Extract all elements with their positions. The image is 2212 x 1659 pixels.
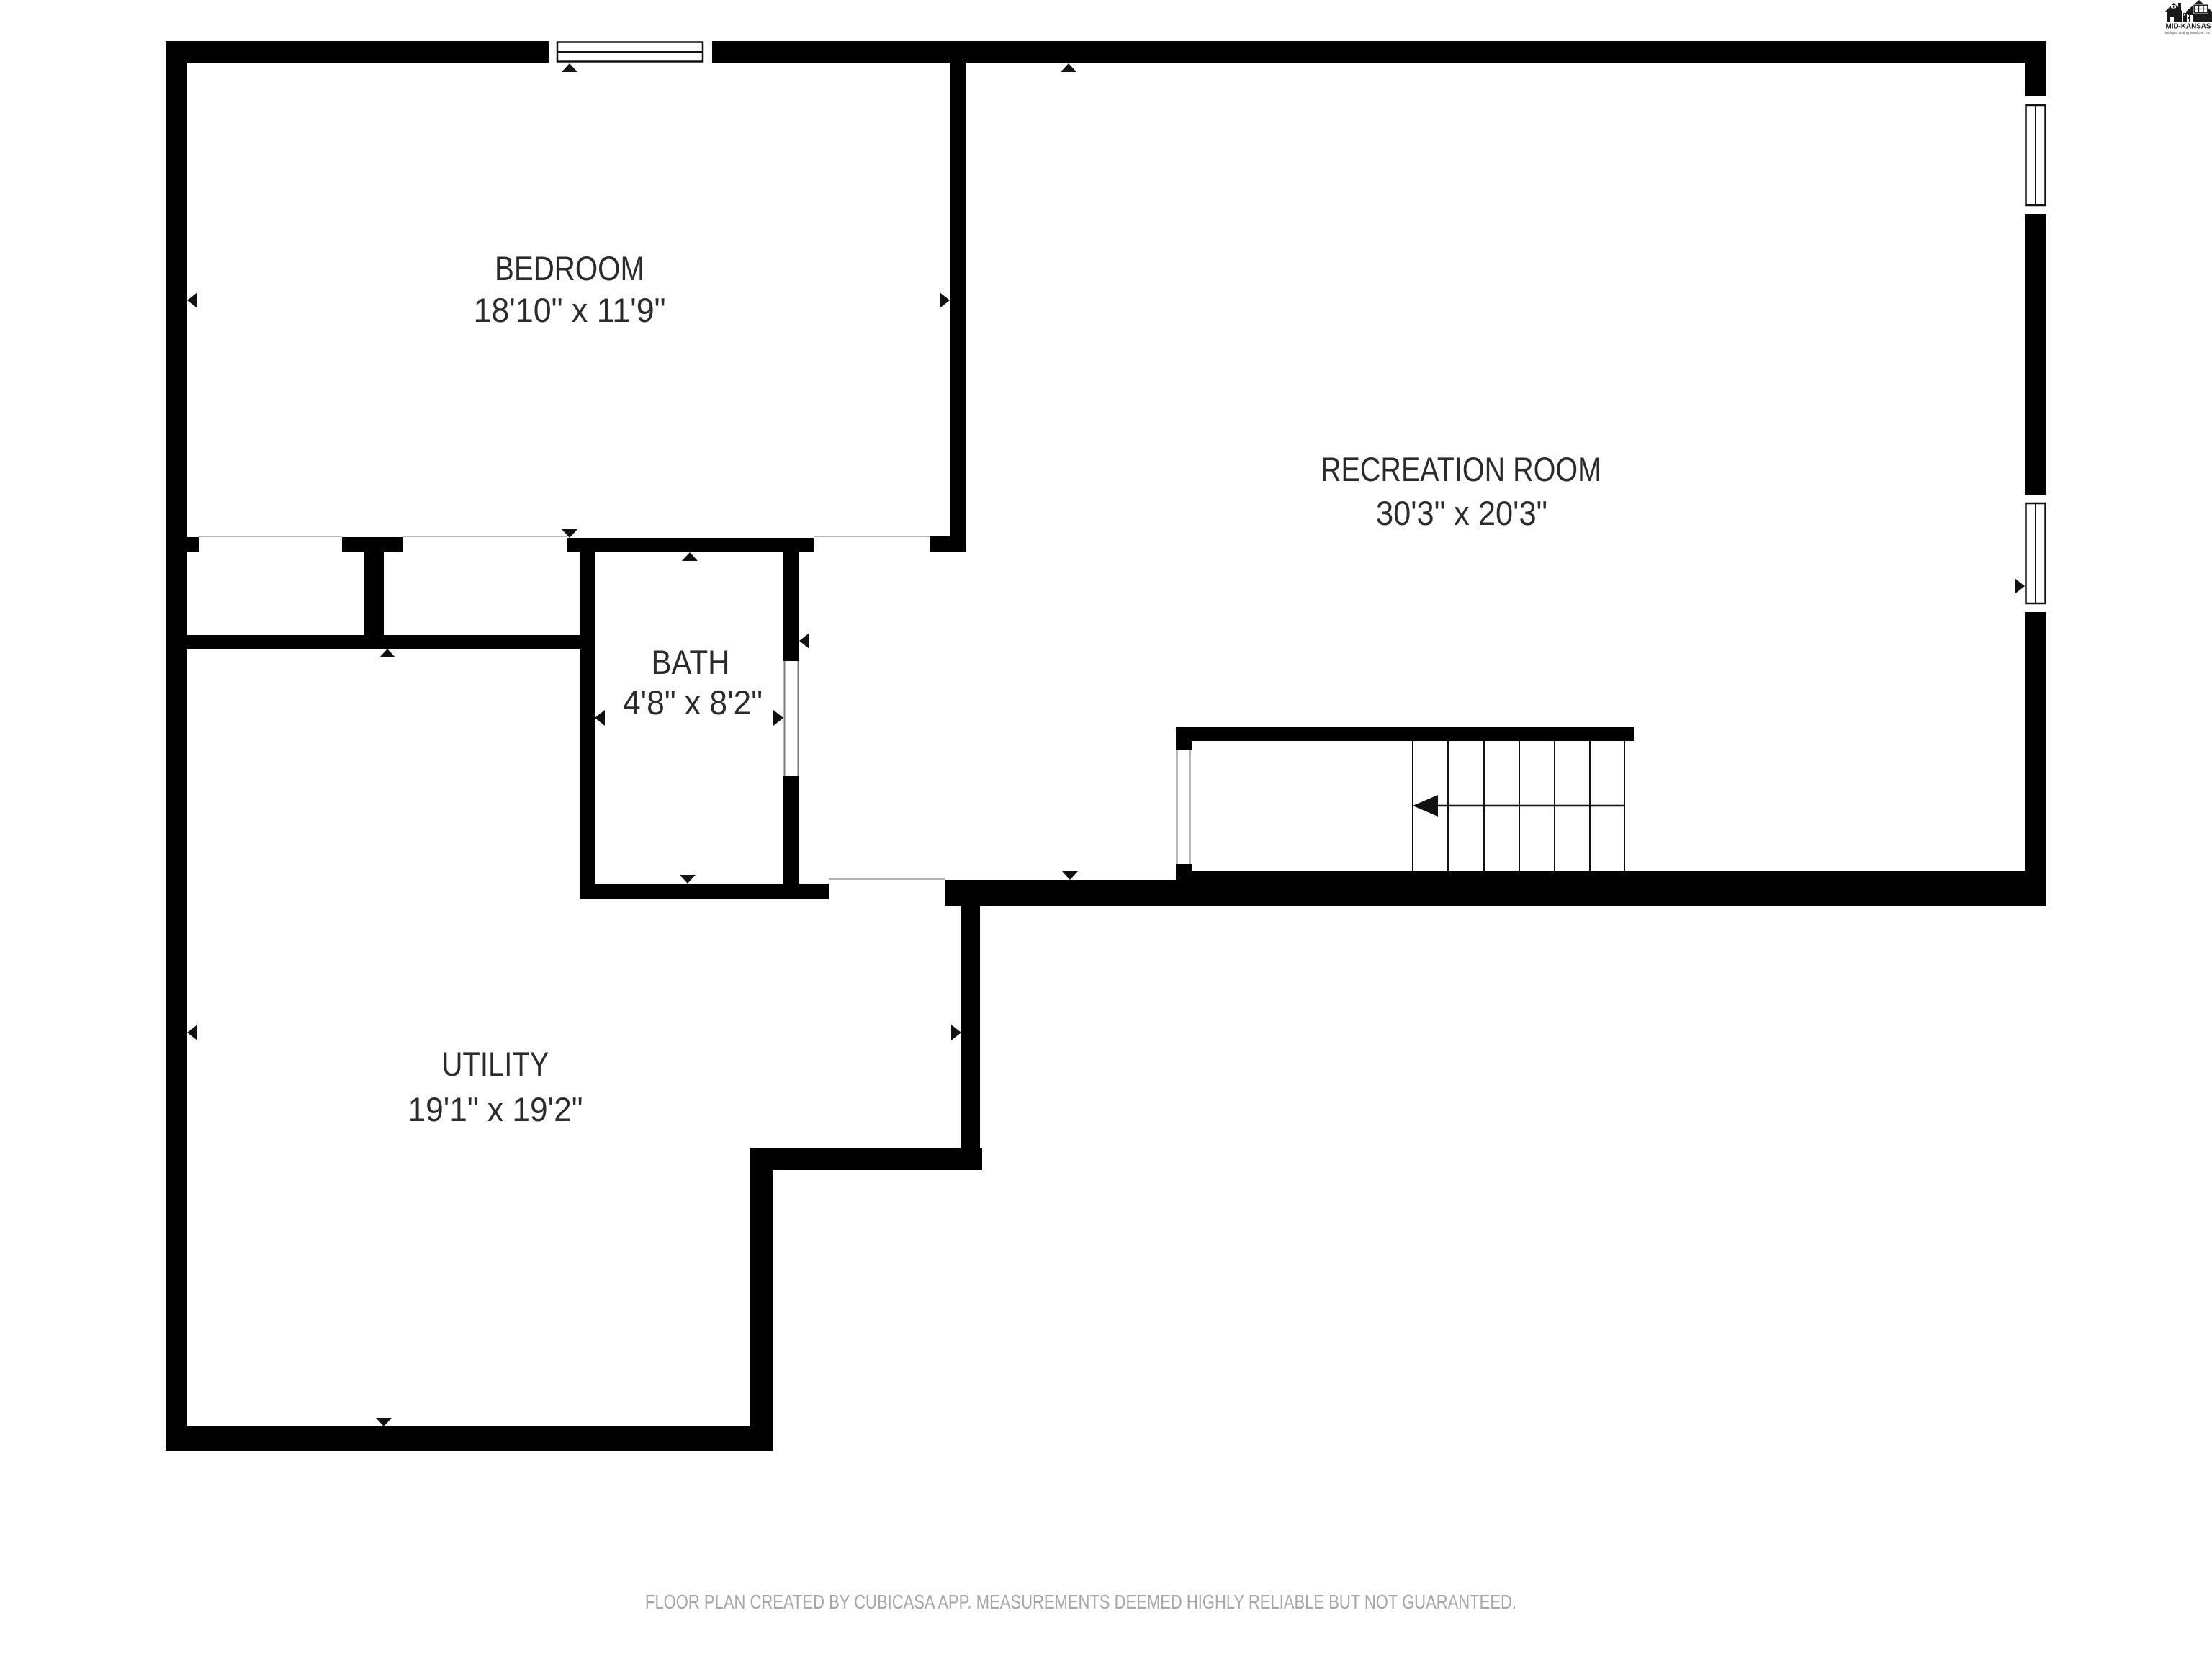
svg-text:30'3" x 20'3": 30'3" x 20'3" [1376, 494, 1547, 532]
svg-text:4'8" x 8'2": 4'8" x 8'2" [623, 683, 763, 721]
svg-text:UTILITY: UTILITY [442, 1045, 549, 1083]
svg-text:18'10" x 11'9": 18'10" x 11'9" [474, 291, 666, 329]
svg-text:FLOOR PLAN CREATED BY CUBICASA: FLOOR PLAN CREATED BY CUBICASA APP. MEAS… [645, 1591, 1516, 1613]
svg-text:19'1" x 19'2": 19'1" x 19'2" [408, 1090, 583, 1128]
svg-text:BATH: BATH [652, 643, 730, 681]
svg-text:MID-KANSAS: MID-KANSAS [2166, 23, 2211, 31]
svg-text:Multiple Listing Services, Inc: Multiple Listing Services, Inc. [2165, 31, 2211, 35]
svg-text:RECREATION ROOM: RECREATION ROOM [1321, 450, 1601, 488]
svg-text:BEDROOM: BEDROOM [495, 249, 644, 287]
